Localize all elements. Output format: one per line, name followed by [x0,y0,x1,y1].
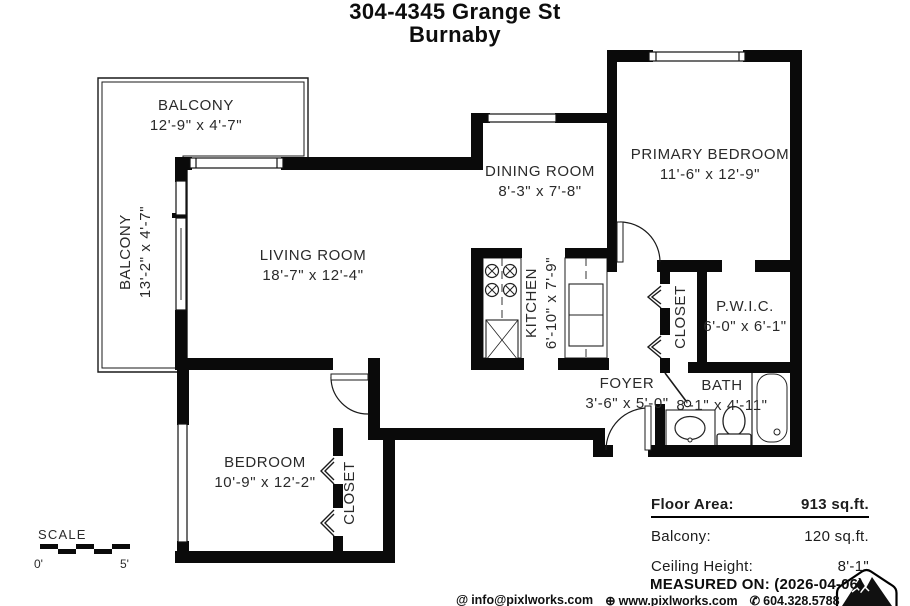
room-name: DINING ROOM [485,162,595,182]
phone-item: ✆604.328.5788 [750,593,840,606]
room-dims: 6'-0" x 6'-1" [703,317,786,337]
title-address: 304-4345 Grange St [349,0,560,23]
label-closet-primary: CLOSET [671,285,691,349]
room-dims: 3'-6" x 5'-0" [585,394,668,414]
room-name: CLOSET [340,461,360,525]
label-primary-bedroom: PRIMARY BEDROOM 11'-6" x 12'-9" [631,145,789,185]
contact-strip: @info@pixlworks.com ⊕www.pixlworks.com ✆… [456,593,836,606]
globe-icon: ⊕ [605,594,615,606]
balcony-area-label: Balcony: [651,528,711,545]
bedroom-door [331,374,368,414]
primary-bedroom-door [617,222,660,262]
label-kitchen: KITCHEN 6'-10" x 7'-9" [522,257,562,349]
room-dims: 13'-2" x 4'-7" [136,206,156,298]
label-closet-bedroom: CLOSET [340,461,360,525]
room-dims: 10'-9" x 12'-2" [214,473,315,493]
website-item: ⊕www.pixlworks.com [605,593,738,606]
email-text: info@pixlworks.com [471,593,593,606]
room-name: FOYER [585,374,668,394]
room-name: BALCONY [116,206,136,298]
room-dims: 18'-7" x 12'-4" [260,266,367,286]
label-dining-room: DINING ROOM 8'-3" x 7'-8" [485,162,595,202]
label-foyer: FOYER 3'-6" x 5'-0" [585,374,668,414]
email-item: @info@pixlworks.com [456,593,593,606]
label-pwic: P.W.I.C. 6'-0" x 6'-1" [703,297,786,337]
room-dims: 11'-6" x 12'-9" [631,165,789,185]
kitchen-sink-icon [486,320,518,360]
scale-end: 5' [120,557,129,571]
balcony-area-row: Balcony: 120 sq.ft. [651,526,869,548]
floorplan-page: 304-4345 Grange St Burnaby BALCONY 12'-9… [0,0,910,606]
room-name: BEDROOM [214,453,315,473]
room-name: KITCHEN [522,257,542,349]
floor-area-value: 913 sq.ft. [801,496,869,513]
room-name: BATH [676,376,767,396]
room-dims: 6'-10" x 7'-9" [542,257,562,349]
area-summary-table: Floor Area: 913 sq.ft. Balcony: 120 sq.f… [651,494,869,586]
fridge-icon [569,284,603,346]
scale-start: 0' [34,557,43,571]
room-name: PRIMARY BEDROOM [631,145,789,165]
label-balcony-left: BALCONY 13'-2" x 4'-7" [116,206,156,298]
room-dims: 8'-1" x 4'-11" [676,396,767,416]
label-living-room: LIVING ROOM 18'-7" x 12'-4" [260,246,367,286]
ceiling-height-value: 8'-1" [838,558,869,575]
ceiling-height-label: Ceiling Height: [651,558,753,575]
title-city: Burnaby [349,23,560,46]
scale-label: SCALE [38,527,87,542]
floor-area-label: Floor Area: [651,496,734,513]
label-bedroom: BEDROOM 10'-9" x 12'-2" [214,453,315,493]
label-balcony-top: BALCONY 12'-9" x 4'-7" [150,96,242,136]
email-icon: @ [456,593,468,606]
phone-text: 604.328.5788 [763,594,839,606]
room-dims: 12'-9" x 4'-7" [150,116,242,136]
phone-icon: ✆ [750,594,760,606]
balcony-area-value: 120 sq.ft. [804,528,869,545]
ceiling-height-row: Ceiling Height: 8'-1" [651,556,869,578]
floor-area-row: Floor Area: 913 sq.ft. [651,494,869,518]
measured-on-text: MEASURED ON: (2026-04-06) [650,576,863,593]
room-name: LIVING ROOM [260,246,367,266]
room-name: BALCONY [150,96,242,116]
website-text: www.pixlworks.com [619,594,738,606]
label-bath: BATH 8'-1" x 4'-11" [676,376,767,416]
room-dims: 8'-3" x 7'-8" [485,182,595,202]
room-name: CLOSET [671,285,691,349]
room-name: P.W.I.C. [703,297,786,317]
scale-bar-icon [40,544,130,554]
page-title: 304-4345 Grange St Burnaby [349,0,560,46]
